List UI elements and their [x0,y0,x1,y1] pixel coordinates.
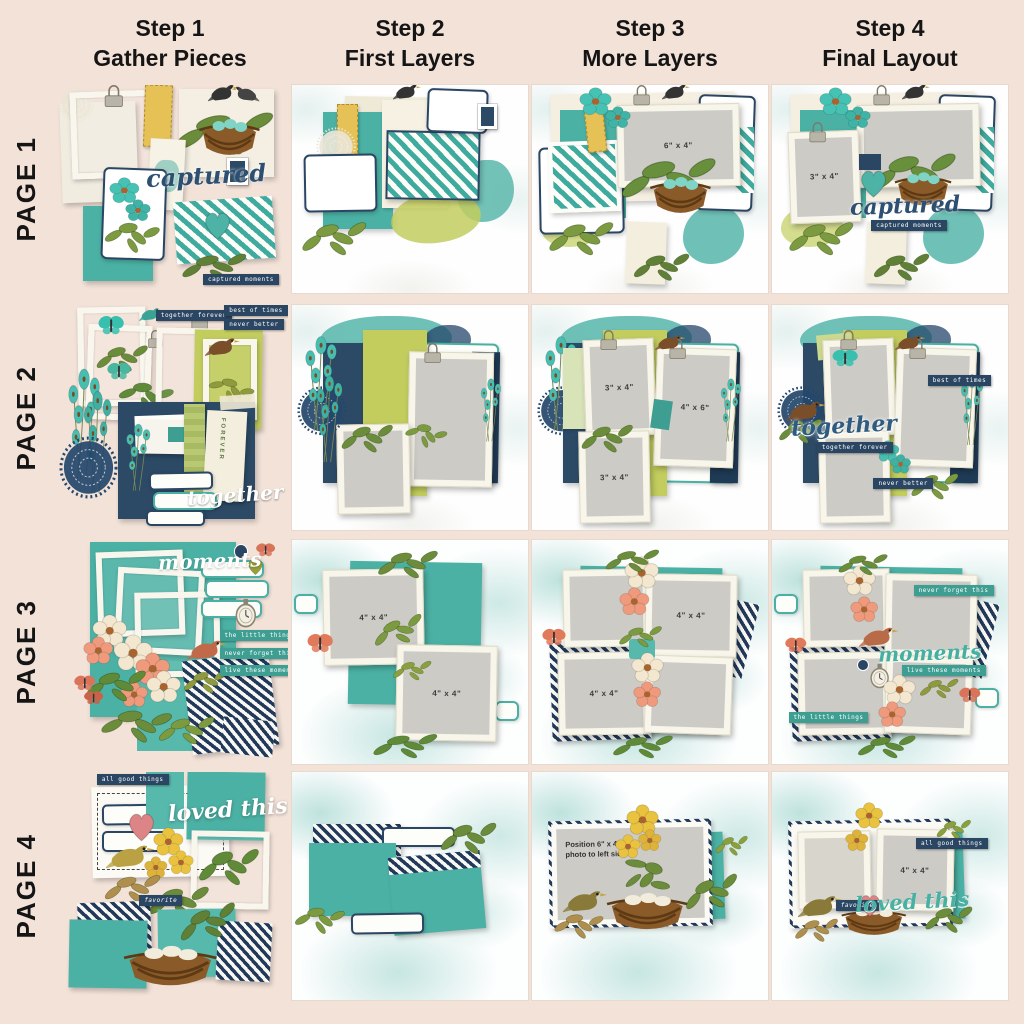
flower-icon [83,636,114,665]
row-label-text: PAGE 3 [11,599,42,704]
tab-card [294,594,318,614]
photo-size-label: 4" x 4" [677,610,706,620]
script-word: moments [878,641,982,665]
cell-page2-step1: together forever best of times never bet… [52,305,288,530]
row-label-text: PAGE 1 [11,136,42,241]
script-word: together [186,482,283,509]
leaves-icon [610,730,676,761]
butterfly-icon [306,632,334,654]
leaves-icon [438,815,499,858]
flower-icon [850,596,878,623]
butterfly-icon [97,314,125,337]
step-title: Step 3 [532,14,768,44]
journal-label [351,913,425,935]
stamp [478,104,497,129]
leaves-icon [579,418,636,456]
bird-icon [902,85,930,102]
heart-icon [201,210,234,241]
striped-paper [547,140,620,213]
cell-page4-step2 [292,772,528,1000]
flower-icon [638,829,662,852]
leaves-icon [339,418,396,456]
binder-clip-icon [807,122,828,145]
word-strip: all good things [97,774,169,785]
nest-icon [194,110,265,160]
button-dot [857,659,869,671]
scrapbook-tutorial-sheet: Step 1 Gather Pieces Step 2 First Layers… [0,0,1024,1024]
leaves-icon [871,247,932,284]
tape [219,394,255,410]
butterfly-icon [784,636,808,654]
word-strip: best of times [224,305,287,316]
word-strip: favorite [139,895,182,906]
word-strip: all good things [916,838,988,849]
row-label-text: PAGE 4 [11,833,42,938]
leaves-icon [551,903,607,944]
watch-icon [234,598,258,629]
leaves-icon [617,621,664,650]
cell-page3-step3: 4" x 4" 4" x 4" [532,540,768,764]
cell-page3-step1: moments the little things never forget t… [52,540,288,764]
cell-page2-step4: together together forever best of times … [772,305,1008,530]
tag-text: FOREVER [218,418,226,461]
photo-size-label: 4" x 4" [589,689,618,699]
script-word: loved this [854,888,969,915]
cell-page3-step4: never forget this live these moments the… [772,540,1008,764]
leaves-icon [631,247,692,284]
cell-page4-step4: 4" x 4" all good things favorite loved t… [772,772,1008,1000]
script-word: captured [146,161,267,191]
photo-size-label: 3" x 4" [600,472,629,482]
flower-icon [619,587,650,616]
leaves-icon [793,913,840,945]
script-word: loved this [167,795,288,825]
script-word: together [790,412,897,440]
flower-icon [631,652,664,683]
flower-icon [146,670,181,704]
word-strip: never better [873,478,932,489]
binder-clip-icon [871,85,892,108]
flower-icon [633,681,661,708]
step-subtitle: Gather Pieces [52,44,288,74]
step-title: Step 1 [52,14,288,44]
binder-clip-icon [422,343,443,366]
photo-size-label: 4" x 4" [900,865,929,875]
butterfly-icon [831,348,859,368]
photo-size-label: 3" x 4" [605,382,634,392]
journal-card [303,153,377,213]
flower-icon [878,701,906,728]
leaves-icon [391,656,433,683]
word-strip: together forever [156,310,232,321]
step-title: Step 2 [292,14,528,44]
column-header-step1: Step 1 Gather Pieces [52,14,288,74]
leaves-icon [786,214,857,260]
nest-icon [116,936,225,991]
bird-icon [393,85,421,102]
word-strip: never forget this [914,585,994,596]
doily-icon [59,436,118,499]
leaves-icon [546,214,617,260]
script-word: captured [850,193,961,219]
journal-label [205,580,269,598]
row-label-text: PAGE 2 [11,365,42,470]
photo-size-label: 4" x 4" [432,689,461,699]
word-strip: captured moments [871,220,947,231]
word-strip: live these moments [902,665,986,676]
step-subtitle: First Layers [292,44,528,74]
row-label-page3: PAGE 3 [0,540,52,764]
cell-page3-step2: 4" x 4" 4" x 4" [292,540,528,764]
step-title: Step 4 [772,14,1008,44]
cell-page4-step1: all good things loved this favorite [52,772,288,1000]
butterfly-icon [541,627,567,647]
binder-clip-icon [102,85,126,110]
row-label-page4: PAGE 4 [0,772,52,1000]
leaves-icon [714,831,749,858]
step-subtitle: Final Layout [772,44,1008,74]
leaves-icon [156,710,217,748]
word-strip: live these moments [220,665,288,676]
nest-icon [645,168,716,218]
leaves-icon [677,865,745,918]
column-header-step2: Step 2 First Layers [292,14,528,74]
flower-icon [845,106,871,129]
flower-icon [855,802,883,829]
striped-paper [386,130,482,200]
leaves-icon [603,544,662,575]
script-word: moments [158,549,262,573]
cell-page1-step4: 3" x 4" captured captured moments [772,85,1008,293]
leaves-icon [370,728,441,762]
tab-card [495,701,519,721]
poppies-icon [478,373,504,445]
bird-icon [655,332,686,352]
cell-page4-step3: Position 6" x 4" photo to left side [532,772,768,1000]
row-label-page2: PAGE 2 [0,305,52,530]
word-strip: never better [224,319,283,330]
butterfly-icon [83,690,104,706]
cell-page2-step3: 3" x 4" 4" x 6" 3" x 4" [532,305,768,530]
column-header-step3: Step 3 More Layers [532,14,768,74]
step-subtitle: More Layers [532,44,768,74]
photo-size-label: 3" x 4" [809,171,838,181]
cell-page1-step1: captured captured moments [52,85,288,293]
word-strip: the little things [220,630,288,641]
photo-size-label: 4" x 6" [680,402,709,412]
cell-page1-step3: 6" x 4" [532,85,768,293]
butterfly-icon [958,686,982,704]
journal-label [146,510,205,526]
leaves-icon [855,730,919,761]
striped-paper [220,717,275,758]
leaves-icon [299,214,370,260]
flower-icon [605,106,631,129]
leaves-icon [836,549,890,578]
cell-page2-step2 [292,305,528,530]
flower-icon [845,829,869,852]
bird-icon [205,334,240,359]
word-strip: best of times [928,375,991,386]
column-header-step4: Step 4 Final Layout [772,14,1008,74]
word-strip: together forever [817,442,893,453]
leaves-icon [918,674,960,701]
row-label-page1: PAGE 1 [0,85,52,293]
word-strip: the little things [789,712,869,723]
binder-clip-icon [631,85,652,108]
bird-icon [662,85,690,102]
binder-clip-icon [598,330,619,353]
leaves-icon [375,544,441,582]
tab-card [774,594,798,614]
cell-page1-step2 [292,85,528,293]
poppies-icon [718,373,744,445]
word-strip: never forget this [220,648,288,659]
word-strip: captured moments [203,274,279,285]
bird-icon [231,85,259,104]
flower-icon [168,850,194,875]
bird-icon [895,332,926,352]
